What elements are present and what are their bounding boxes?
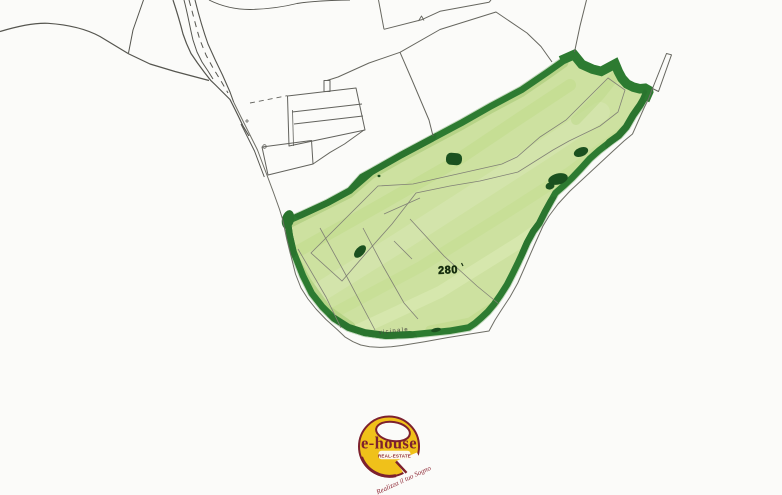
svg-text:e-house: e-house xyxy=(361,434,417,453)
svg-text:280: 280 xyxy=(438,264,458,277)
svg-text:REAL-ESTATE: REAL-ESTATE xyxy=(378,453,411,458)
